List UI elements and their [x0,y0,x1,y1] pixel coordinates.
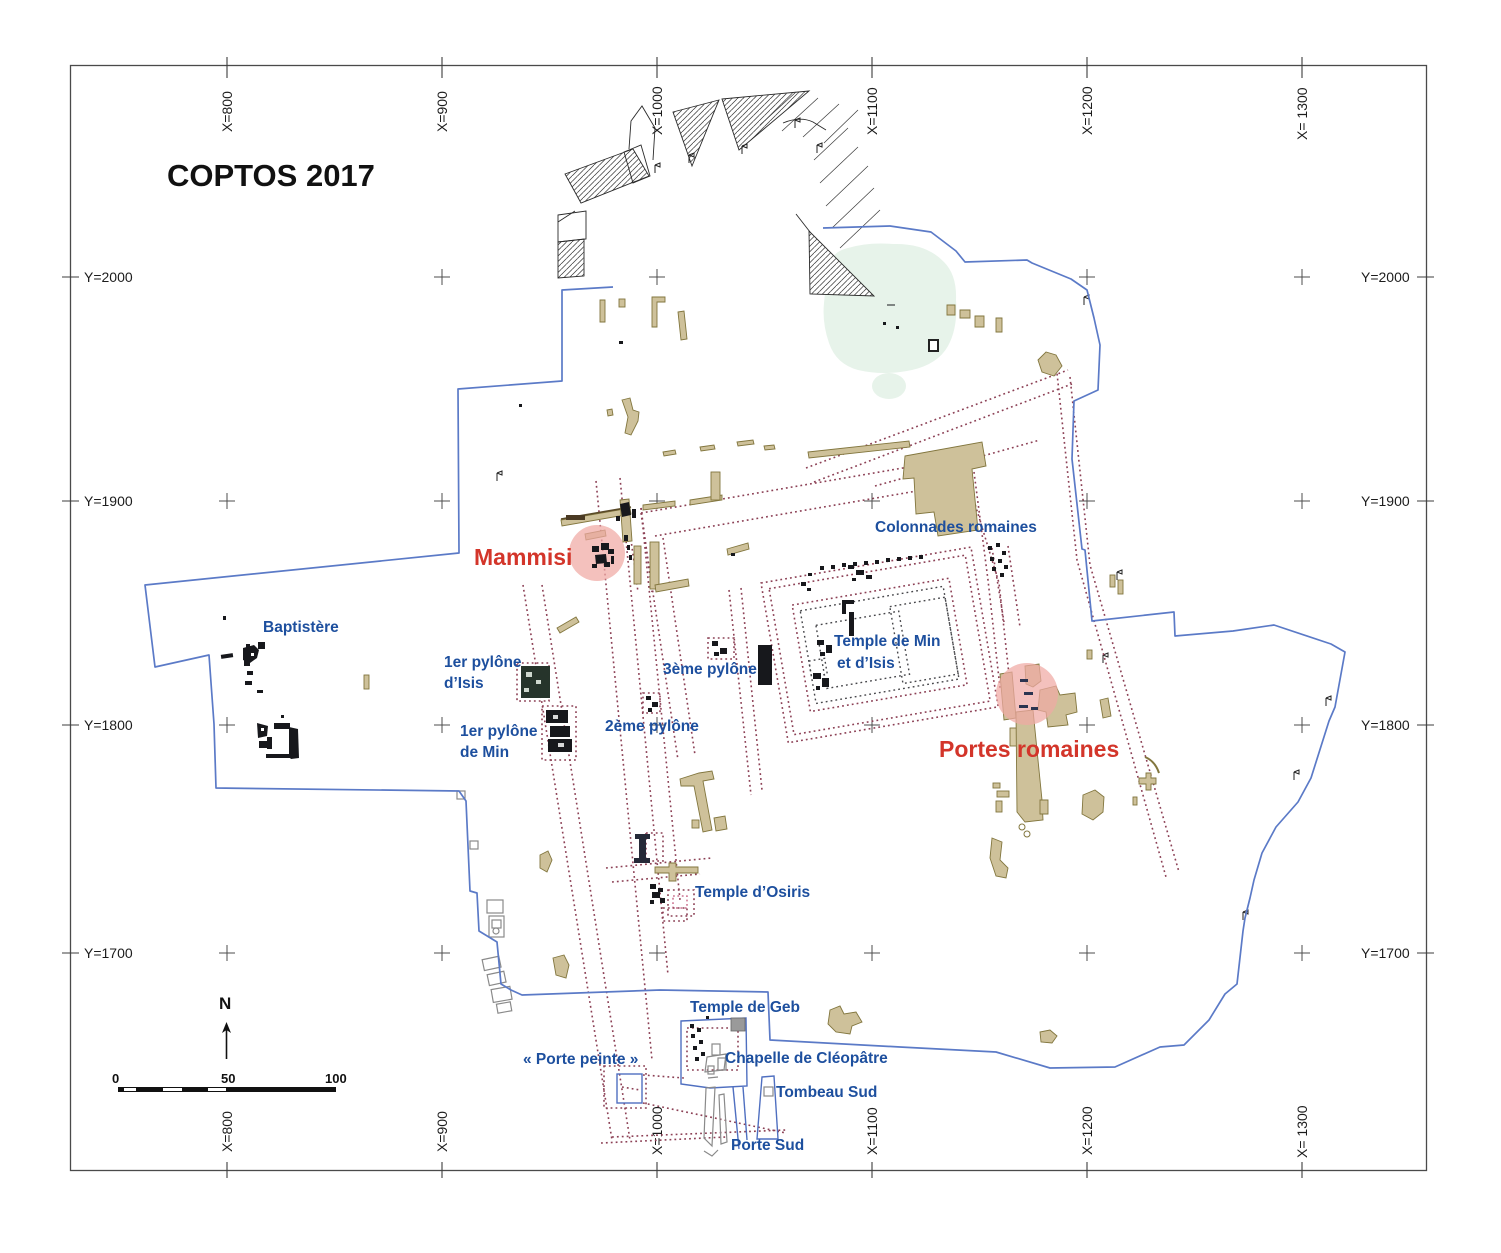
svg-text:Temple de Min: Temple de Min [834,633,941,650]
svg-text:3ème pylône: 3ème pylône [663,661,757,678]
svg-text:Y=1900: Y=1900 [1361,493,1410,509]
svg-text:X=1100: X=1100 [864,1107,880,1155]
svg-text:de Min: de Min [460,744,509,761]
svg-text:X=900: X=900 [434,1111,450,1152]
svg-text:50: 50 [221,1071,235,1086]
svg-text:Temple de Geb: Temple de Geb [690,999,800,1016]
svg-text:100: 100 [325,1071,347,1086]
svg-text:Portes romaines: Portes romaines [939,736,1119,762]
svg-text:X=1000: X=1000 [649,86,665,135]
svg-text:0: 0 [112,1071,119,1086]
svg-text:X=900: X=900 [434,91,450,132]
svg-text:Y=2000: Y=2000 [1361,269,1410,285]
svg-text:Y=1800: Y=1800 [84,717,133,733]
svg-text:« Porte peinte »: « Porte peinte » [523,1051,638,1068]
svg-text:Porte Sud: Porte Sud [731,1137,804,1154]
svg-text:et d’Isis: et d’Isis [837,655,895,672]
svg-text:X=800: X=800 [219,91,235,132]
svg-text:X=1000: X=1000 [649,1106,665,1155]
svg-text:Baptistère: Baptistère [263,619,339,636]
svg-text:X=1100: X=1100 [864,87,880,135]
svg-text:X= 1300: X= 1300 [1294,1105,1310,1158]
svg-text:1er pylône: 1er pylône [460,723,538,740]
svg-text:COPTOS 2017: COPTOS 2017 [167,158,375,193]
svg-text:Y=1900: Y=1900 [84,493,133,509]
svg-text:N: N [219,994,231,1013]
svg-text:X=1200: X=1200 [1079,86,1095,135]
svg-text:1er pylône: 1er pylône [444,654,522,671]
svg-text:Y=1800: Y=1800 [1361,717,1410,733]
svg-text:Colonnades romaines: Colonnades romaines [875,519,1037,536]
svg-text:Y=2000: Y=2000 [84,269,133,285]
svg-text:Tombeau Sud: Tombeau Sud [776,1084,877,1101]
svg-text:X=800: X=800 [219,1111,235,1152]
svg-text:Temple d’Osiris: Temple d’Osiris [695,884,810,901]
svg-text:Y=1700: Y=1700 [84,945,133,961]
svg-text:Y=1700: Y=1700 [1361,945,1410,961]
svg-text:X= 1300: X= 1300 [1294,87,1310,140]
svg-text:d’Isis: d’Isis [444,675,484,692]
svg-text:X=1200: X=1200 [1079,1106,1095,1155]
svg-text:2ème pylône: 2ème pylône [605,718,699,735]
svg-text:Chapelle de Cléopâtre: Chapelle de Cléopâtre [725,1050,888,1067]
svg-text:Mammisi: Mammisi [474,544,572,570]
